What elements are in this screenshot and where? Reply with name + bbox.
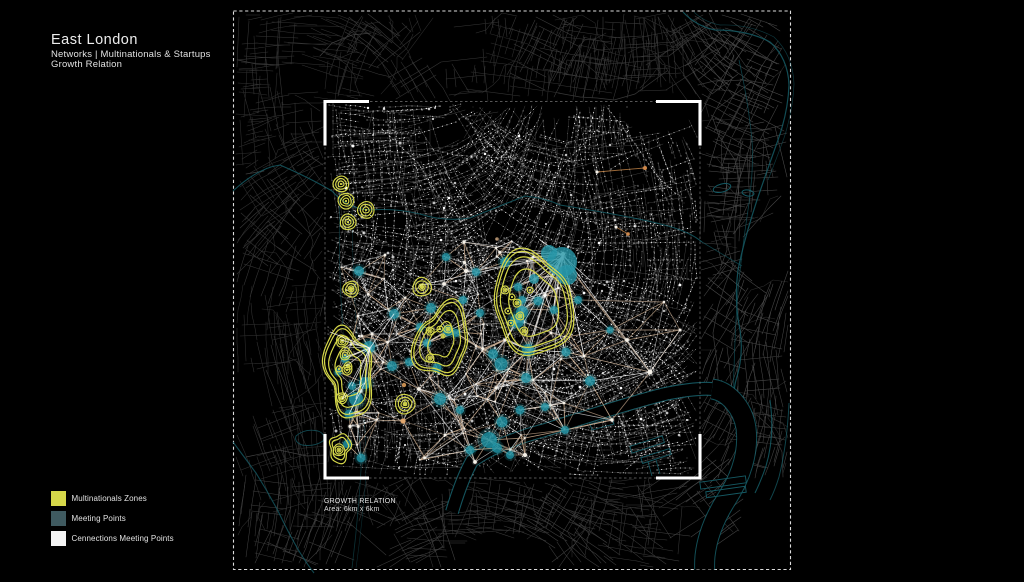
svg-text:GROWTH RELATION: GROWTH RELATION — [324, 498, 396, 505]
svg-text:Area: 6km x 6km: Area: 6km x 6km — [324, 506, 380, 513]
